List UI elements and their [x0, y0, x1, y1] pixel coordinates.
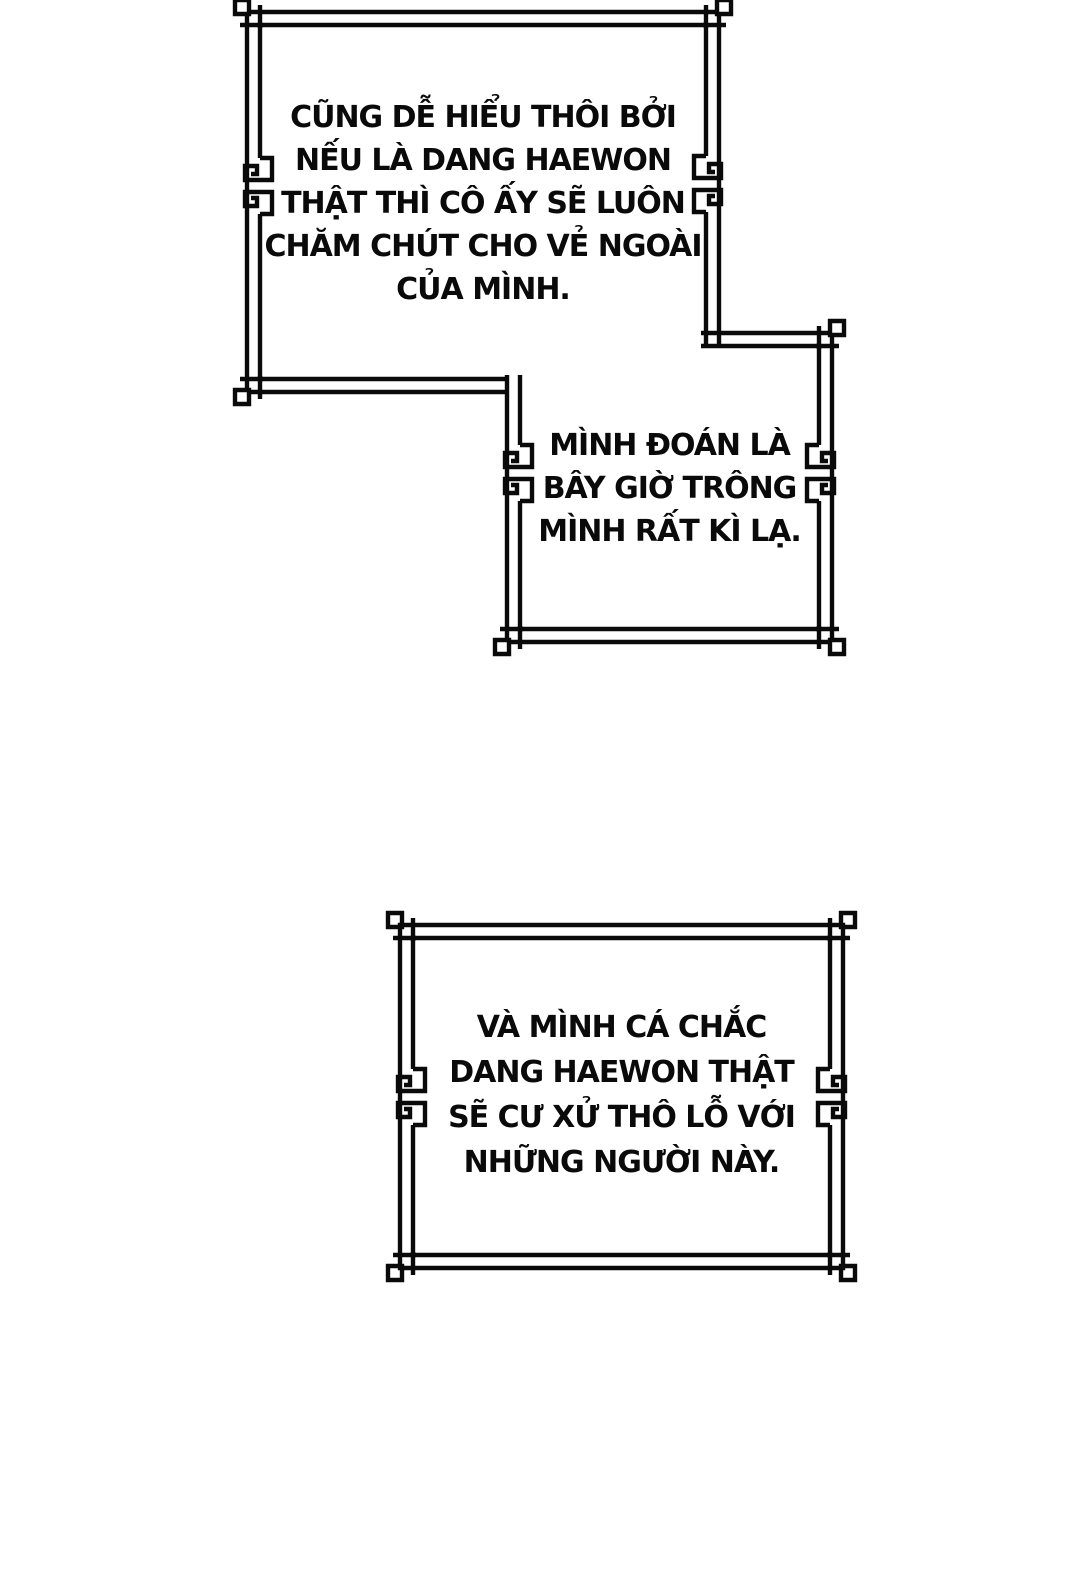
- narration-line: SẼ CƯ XỬ THÔ LỖ VỚI: [413, 1095, 830, 1140]
- comic-page: CŨNG DỄ HIỂU THÔI BỞI NẾU LÀ DANG HAEWON…: [0, 0, 1080, 1586]
- narration-line: BÂY GIỜ TRÔNG: [520, 467, 819, 510]
- narration-line: CŨNG DỄ HIỂU THÔI BỞI: [260, 96, 706, 139]
- narration-line: NHỮNG NGƯỜI NÀY.: [413, 1140, 830, 1185]
- narration-line: CỦA MÌNH.: [260, 268, 706, 311]
- narration-line: THẬT THÌ CÔ ẤY SẼ LUÔN: [260, 182, 706, 225]
- narration-line: MÌNH ĐOÁN LÀ: [520, 424, 819, 467]
- narration-line: VÀ MÌNH CÁ CHẮC: [413, 1005, 830, 1050]
- narration-line: NẾU LÀ DANG HAEWON: [260, 139, 706, 182]
- narration-box-3: VÀ MÌNH CÁ CHẮC DANG HAEWON THẬT SẼ CƯ X…: [413, 1005, 830, 1185]
- narration-box-1: CŨNG DỄ HIỂU THÔI BỞI NẾU LÀ DANG HAEWON…: [260, 96, 706, 311]
- narration-box-2: MÌNH ĐOÁN LÀ BÂY GIỜ TRÔNG MÌNH RẤT KÌ L…: [520, 424, 819, 553]
- narration-line: MÌNH RẤT KÌ LẠ.: [520, 510, 819, 553]
- narration-line: CHĂM CHÚT CHO VẺ NGOÀI: [260, 225, 706, 268]
- narration-line: DANG HAEWON THẬT: [413, 1050, 830, 1095]
